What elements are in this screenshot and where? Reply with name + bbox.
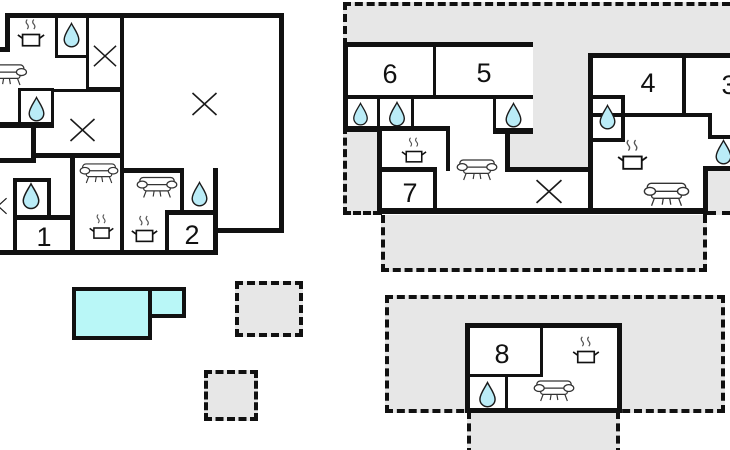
- wall: [377, 99, 380, 127]
- room-label-1: 1: [29, 222, 59, 252]
- sofa-icon: [643, 179, 690, 209]
- wall: [0, 158, 36, 163]
- wall: [617, 323, 622, 413]
- wall: [621, 95, 625, 142]
- terrace-left-small: [343, 126, 381, 215]
- wall: [588, 53, 593, 213]
- wall: [13, 215, 73, 220]
- floor-plan: 1 2 3 4 5 6 7 8: [0, 0, 730, 450]
- stove-pot-icon: [399, 136, 429, 167]
- sofa-icon: [0, 61, 28, 88]
- water-drop-icon: [352, 102, 369, 126]
- window-cross-icon: [92, 44, 118, 68]
- wall: [55, 55, 89, 58]
- swimming-pool-step: [148, 287, 186, 318]
- wall: [0, 47, 10, 52]
- room-label-4: 4: [633, 68, 663, 98]
- sofa-icon: [456, 156, 498, 183]
- wall: [381, 167, 437, 172]
- wall: [33, 153, 123, 158]
- wall: [433, 47, 436, 95]
- wall: [343, 126, 381, 132]
- stove-pot-icon: [616, 138, 649, 175]
- sofa-icon: [533, 377, 575, 404]
- window-cross-icon: [190, 91, 219, 117]
- wall: [682, 58, 686, 113]
- wall: [47, 178, 51, 219]
- wall: [505, 167, 592, 172]
- wall: [343, 95, 533, 99]
- water-drop-icon: [28, 96, 45, 122]
- stove-pot-icon: [16, 16, 46, 53]
- water-drop-icon: [505, 102, 522, 128]
- room-label-8: 8: [487, 339, 517, 369]
- stove-pot-icon: [88, 212, 115, 244]
- terrace-right-strip: [708, 171, 730, 215]
- terrace-square-1: [235, 281, 303, 337]
- wall: [51, 88, 54, 126]
- window-cross-icon: [534, 178, 564, 205]
- wall: [216, 228, 284, 233]
- room-label-5: 5: [469, 58, 499, 88]
- wall: [70, 153, 75, 253]
- water-drop-icon: [478, 381, 497, 408]
- wall: [51, 89, 120, 92]
- sofa-icon: [79, 160, 119, 186]
- stove-pot-icon: [130, 213, 159, 248]
- wall: [505, 128, 510, 172]
- wall: [18, 88, 54, 91]
- wall: [343, 42, 533, 47]
- wall: [0, 122, 54, 128]
- wall: [7, 13, 284, 18]
- wall: [433, 167, 437, 213]
- wall: [493, 97, 496, 130]
- wall: [588, 53, 730, 58]
- wall: [279, 13, 284, 233]
- wall: [465, 323, 470, 413]
- wall: [165, 210, 169, 253]
- terrace-gap-column: [533, 42, 592, 167]
- water-drop-icon: [598, 104, 617, 130]
- wall: [505, 377, 508, 411]
- wall: [540, 328, 543, 377]
- wall: [343, 42, 348, 131]
- room-label-3: 3: [712, 70, 730, 100]
- stove-pot-icon: [571, 335, 601, 368]
- wall: [55, 13, 58, 58]
- wall: [446, 131, 450, 171]
- wall: [18, 88, 21, 126]
- wall: [86, 13, 89, 90]
- water-drop-icon: [388, 101, 406, 127]
- wall: [493, 128, 533, 134]
- water-drop-icon: [715, 139, 730, 165]
- terrace-unit8-south: [467, 411, 620, 450]
- terrace-bottom-wide: [381, 215, 707, 272]
- wall: [465, 323, 622, 328]
- sofa-icon: [136, 173, 178, 201]
- wall: [165, 210, 218, 215]
- wall: [180, 168, 184, 215]
- wall: [703, 166, 708, 215]
- swimming-pool: [72, 287, 152, 340]
- water-drop-icon: [63, 21, 80, 49]
- wall: [411, 99, 414, 127]
- window-cross-icon: [0, 194, 8, 218]
- room-label-2: 2: [177, 220, 207, 250]
- wall: [465, 408, 622, 413]
- water-drop-icon: [22, 181, 40, 211]
- wall: [120, 13, 124, 253]
- terrace-square-2: [204, 370, 258, 421]
- room-label-7: 7: [395, 178, 425, 208]
- water-drop-icon: [191, 181, 208, 207]
- room-label-6: 6: [375, 59, 405, 89]
- window-cross-icon: [68, 117, 97, 143]
